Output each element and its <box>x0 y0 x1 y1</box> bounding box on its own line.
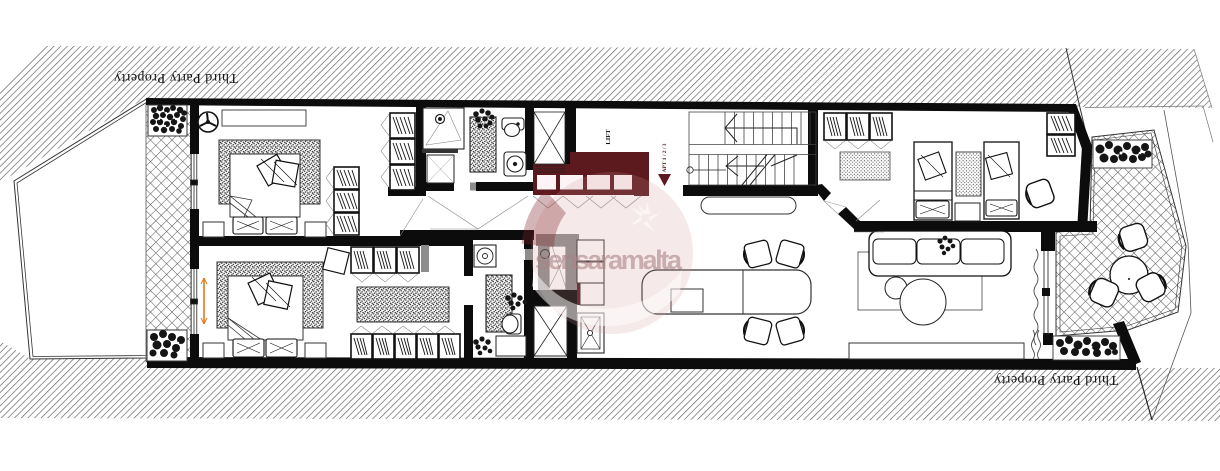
svg-text:APT 1 / 2 / 3: APT 1 / 2 / 3 <box>662 143 668 172</box>
svg-text:Third Party Property: Third Party Property <box>114 70 238 85</box>
svg-text:LIFT: LIFT <box>605 129 612 145</box>
svg-text:Third Party Property: Third Party Property <box>994 372 1118 387</box>
svg-text:sensaramalta: sensaramalta <box>535 245 683 275</box>
